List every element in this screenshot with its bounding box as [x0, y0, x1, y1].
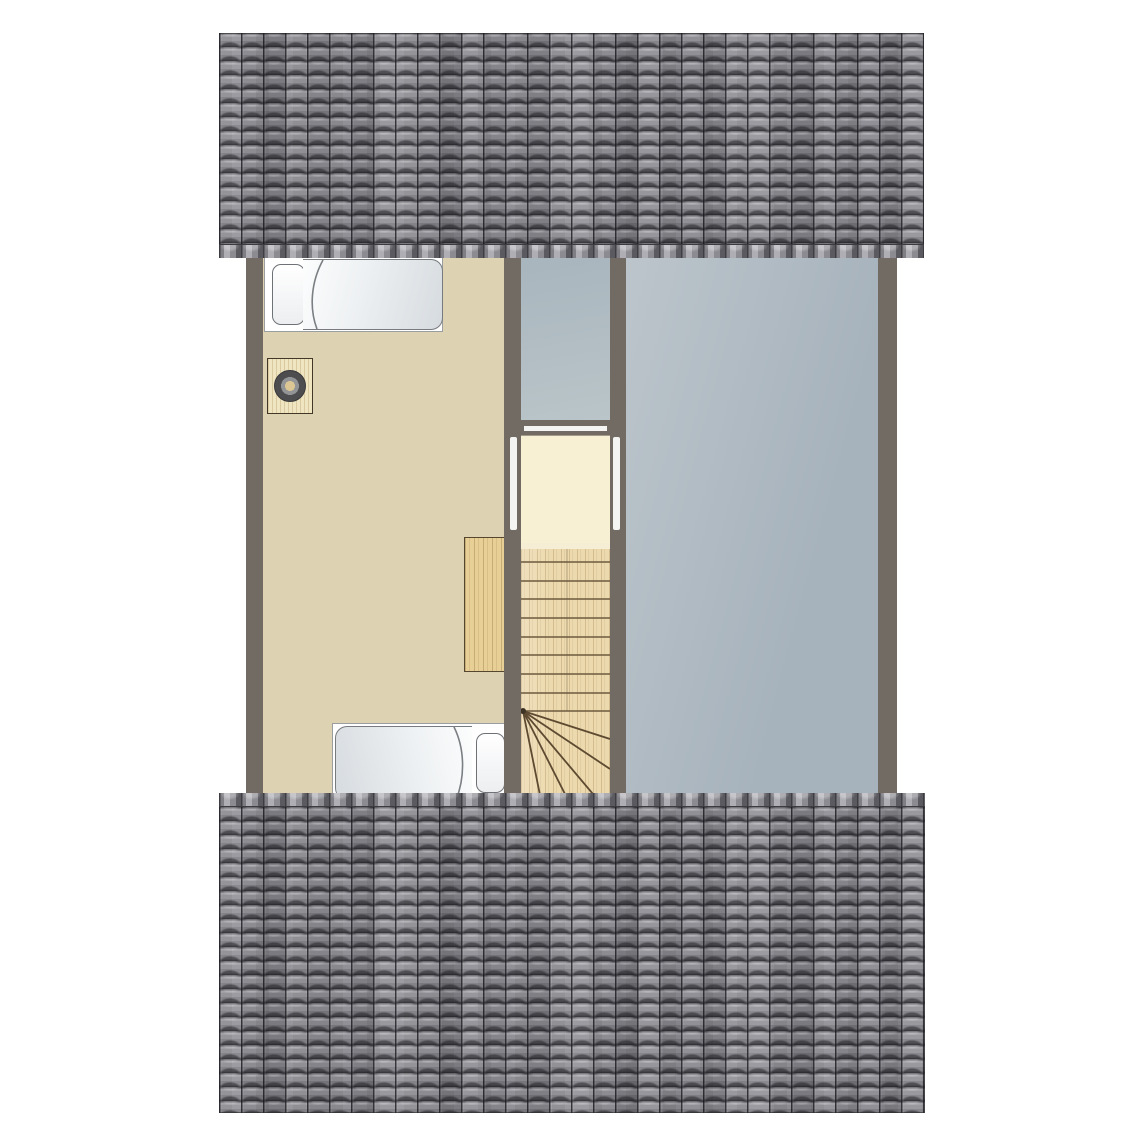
roof-lower-eave	[219, 793, 925, 807]
floor-plan	[0, 0, 1145, 1145]
bedroom-floor	[263, 258, 504, 800]
closet-transom-strip	[524, 426, 607, 431]
roof-lower	[219, 793, 925, 1113]
duvet	[303, 259, 443, 330]
closet-door-track-left	[510, 437, 517, 530]
wall-right	[878, 258, 897, 800]
attic-void-right	[626, 258, 878, 800]
duvet-crease	[336, 727, 472, 800]
duvet-crease	[303, 260, 442, 329]
stair-winder-lines	[523, 711, 610, 800]
closet-door-track-right	[613, 437, 620, 530]
roof-upper-eave	[219, 244, 924, 258]
staircase	[521, 543, 610, 800]
single-bed-bottom	[332, 723, 506, 801]
desk	[464, 537, 506, 672]
wall-left	[246, 258, 263, 800]
stair-treads	[521, 543, 610, 800]
roof-upper	[219, 33, 924, 258]
pillow	[476, 733, 505, 793]
single-bed-top	[264, 258, 443, 332]
duvet	[335, 726, 472, 800]
closet-floor	[521, 435, 610, 544]
pillow	[272, 264, 305, 325]
attic-void-upper	[521, 258, 610, 420]
table-lamp	[274, 370, 306, 402]
